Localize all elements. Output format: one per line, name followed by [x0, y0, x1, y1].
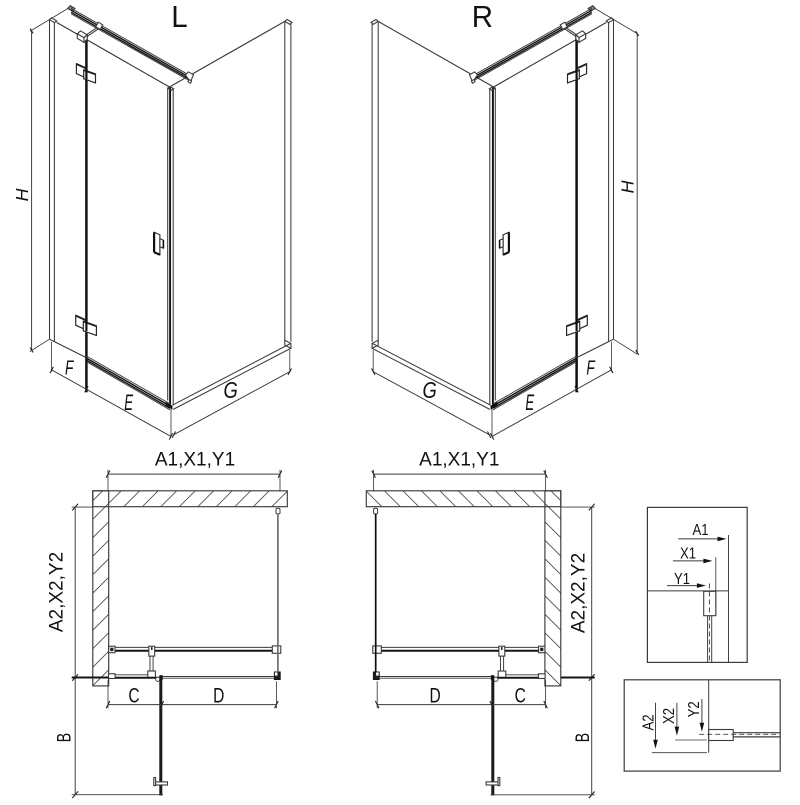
svg-text:D: D — [429, 683, 440, 707]
svg-text:Y1: Y1 — [674, 571, 690, 588]
svg-text:C: C — [128, 683, 139, 707]
svg-text:Y2: Y2 — [686, 701, 703, 717]
svg-text:A1,X1,Y1: A1,X1,Y1 — [155, 449, 235, 470]
svg-text:G: G — [224, 378, 238, 403]
svg-text:A2: A2 — [640, 714, 657, 730]
svg-text:F: F — [65, 356, 74, 379]
svg-text:A1,X1,Y1: A1,X1,Y1 — [419, 449, 499, 470]
svg-text:H: H — [617, 180, 637, 193]
svg-text:X1: X1 — [680, 545, 696, 562]
svg-text:H: H — [12, 188, 32, 201]
svg-text:A2,X2,Y2: A2,X2,Y2 — [569, 553, 590, 633]
svg-text:L: L — [171, 0, 187, 34]
svg-text:X2: X2 — [661, 708, 678, 724]
svg-text:C: C — [515, 683, 526, 707]
svg-text:E: E — [124, 390, 133, 414]
svg-text:E: E — [525, 390, 534, 414]
svg-text:G: G — [423, 378, 437, 403]
svg-text:B: B — [572, 733, 594, 742]
svg-text:B: B — [53, 733, 75, 742]
svg-text:A1: A1 — [692, 522, 708, 539]
svg-text:D: D — [213, 683, 224, 707]
svg-text:R: R — [472, 0, 493, 34]
svg-text:F: F — [586, 356, 595, 379]
svg-text:A2,X2,Y2: A2,X2,Y2 — [47, 552, 68, 632]
